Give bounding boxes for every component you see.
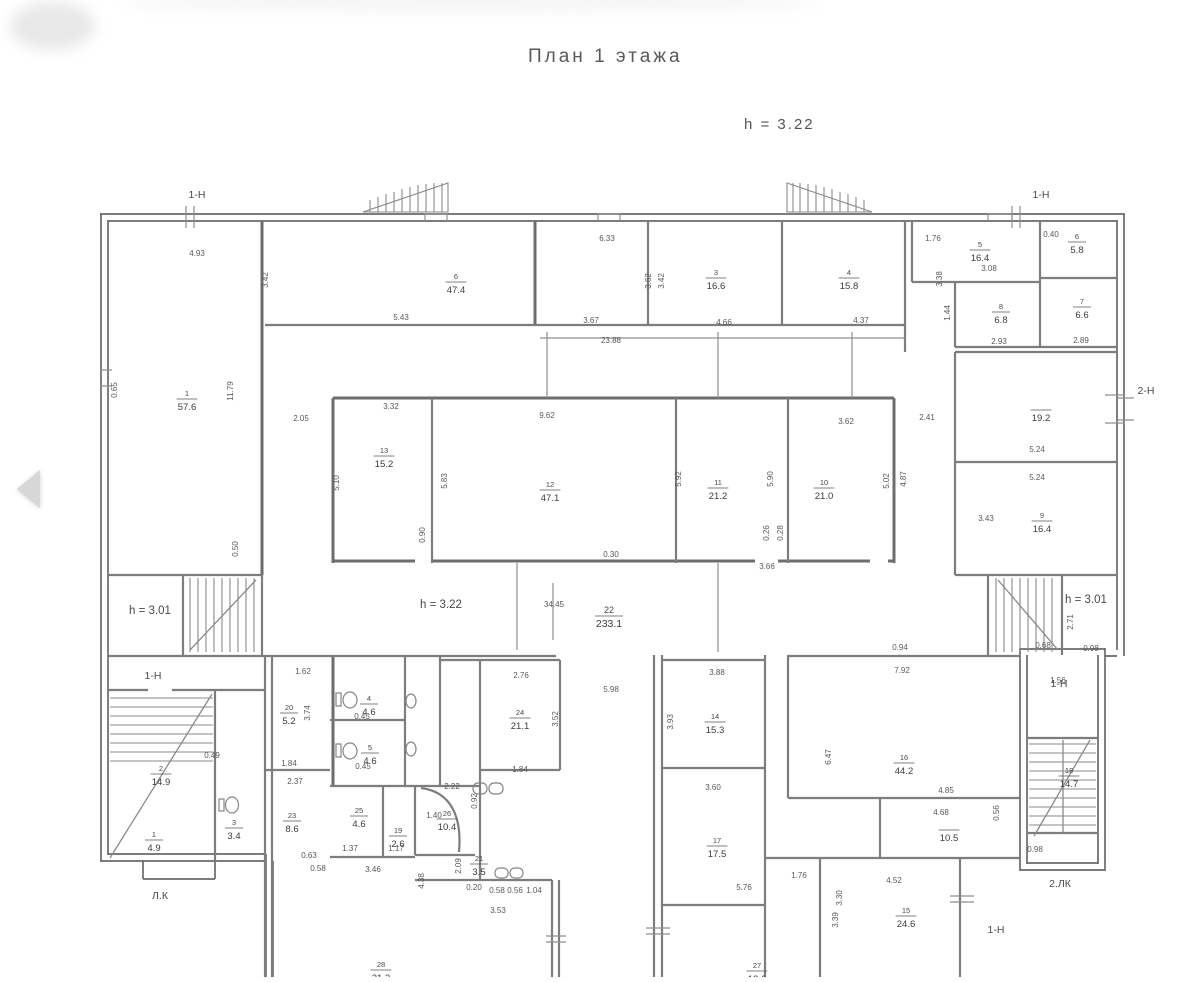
room-number: 16 bbox=[900, 753, 908, 762]
room-area: 4.9 bbox=[147, 843, 160, 854]
dimension-labels: 4.933.426.335.433.6723.884.664.373.623.4… bbox=[110, 230, 1099, 928]
room-number: 1 bbox=[185, 389, 189, 398]
room-number: 17 bbox=[713, 836, 721, 845]
dimension-label: 6.33 bbox=[599, 234, 615, 243]
room-area: 10.4 bbox=[438, 822, 457, 833]
sink-icon bbox=[406, 694, 416, 708]
dimension-label: 0.28 bbox=[776, 525, 785, 541]
room-number: 4 bbox=[847, 268, 851, 277]
dimension-label: 1.40 bbox=[426, 811, 442, 820]
dimension-label: 3.62 bbox=[838, 417, 854, 426]
dimension-label: 0.45 bbox=[354, 712, 370, 721]
dimension-label: 5.10 bbox=[332, 475, 341, 491]
dimension-label: 1.37 bbox=[342, 844, 358, 853]
section-marker: 1-Н bbox=[988, 924, 1005, 936]
section-marker: 1-Н bbox=[1051, 678, 1068, 690]
toilet-icon bbox=[343, 692, 357, 708]
section-marker: 1-Н bbox=[145, 670, 162, 682]
room-number: 13 bbox=[380, 446, 388, 455]
room-area: 21.2 bbox=[709, 491, 728, 502]
room-number: 11 bbox=[714, 478, 722, 487]
dimension-label: 3.08 bbox=[981, 264, 997, 273]
dimension-label: 2.93 bbox=[991, 337, 1007, 346]
dimension-label: 0.40 bbox=[1043, 230, 1059, 239]
dimension-label: 1.76 bbox=[925, 234, 941, 243]
room-number: 22 bbox=[604, 605, 614, 615]
dimension-label: 5.83 bbox=[440, 473, 449, 489]
room-area: 3.5 bbox=[472, 867, 485, 878]
room-number: 20 bbox=[285, 703, 293, 712]
room-number: 9 bbox=[1040, 511, 1044, 520]
room-number: 3 bbox=[232, 818, 236, 827]
room-number: 5 bbox=[978, 240, 982, 249]
dimension-label: 0.58 bbox=[310, 864, 326, 873]
room-area: 47.1 bbox=[541, 493, 560, 504]
dimension-label: 23.88 bbox=[601, 336, 622, 345]
dimension-label: 3.53 bbox=[490, 906, 506, 915]
dimension-label: 4.93 bbox=[189, 249, 205, 258]
room-number: 5 bbox=[368, 743, 372, 752]
floor-height-note: h = 3.22 bbox=[744, 116, 815, 133]
dimension-label: 3.74 bbox=[303, 705, 312, 721]
room-number: 10 bbox=[820, 478, 828, 487]
height-note: h = 3.22 bbox=[420, 599, 462, 611]
dimension-label: 1.84 bbox=[281, 759, 297, 768]
dimension-label: 2.71 bbox=[1066, 614, 1075, 630]
plan-title: План 1 этажа bbox=[528, 46, 683, 68]
section-marker: 2.ЛК bbox=[1049, 878, 1072, 890]
room-number: 3 bbox=[714, 268, 718, 277]
dimension-label: 5.24 bbox=[1029, 473, 1045, 482]
room-area: 21.0 bbox=[815, 491, 834, 502]
room-area: 57.6 bbox=[178, 402, 197, 413]
room-area: 16.4 bbox=[1033, 524, 1052, 535]
dimension-label: 6.47 bbox=[824, 749, 833, 765]
room-area: 15.3 bbox=[706, 725, 725, 736]
dimension-label: 2.22 bbox=[444, 782, 460, 791]
dimension-label: 0.98 bbox=[1083, 644, 1099, 653]
room-area: 14.7 bbox=[1060, 779, 1079, 790]
dimension-label: 0.45 bbox=[355, 762, 371, 771]
room-area: 15.2 bbox=[375, 459, 394, 470]
dimension-label: 3.38 bbox=[935, 271, 944, 287]
dimension-label: 4.38 bbox=[417, 873, 426, 889]
sink-icon bbox=[406, 742, 416, 756]
toilet-icon bbox=[343, 743, 357, 759]
dimension-label: 2.05 bbox=[293, 414, 309, 423]
dimension-label: 0.49 bbox=[204, 751, 220, 760]
dimension-label: 1.76 bbox=[791, 871, 807, 880]
dimension-label: 0.56 bbox=[507, 886, 523, 895]
dimension-label: 3.32 bbox=[383, 402, 399, 411]
room-number: 18 bbox=[1065, 766, 1073, 775]
room-number: 26 bbox=[443, 809, 451, 818]
dimension-label: 0.92 bbox=[470, 793, 479, 809]
dimension-label: 0.94 bbox=[892, 643, 908, 652]
dimension-label: 3.46 bbox=[365, 865, 381, 874]
room-number: 24 bbox=[516, 708, 524, 717]
dimension-label: 2.89 bbox=[1073, 336, 1089, 345]
room-area: 5.2 bbox=[282, 716, 295, 727]
room-number: 21 bbox=[475, 854, 483, 863]
dimension-label: 0.50 bbox=[231, 541, 240, 557]
dimension-label: 3.42 bbox=[261, 272, 270, 288]
dimension-label: 0.63 bbox=[301, 851, 317, 860]
scanned-plan-sheet: План 1 этажа h = 3.22 bbox=[0, 0, 1200, 977]
section-marker: 2-Н bbox=[1138, 385, 1155, 397]
dimension-label: 5.43 bbox=[393, 313, 409, 322]
room-area: 6.6 bbox=[1075, 310, 1088, 321]
dimension-label: 0.56 bbox=[992, 805, 1001, 821]
floorplan-image-viewer: { "viewer": { "prev_arrow_icon": "left-t… bbox=[0, 0, 1200, 977]
toilet-icon bbox=[336, 693, 341, 706]
dimension-label: 34.45 bbox=[544, 600, 565, 609]
room-area: 16.4 bbox=[971, 253, 990, 264]
toilet-icon bbox=[219, 799, 224, 811]
dimension-label: 4.37 bbox=[853, 316, 869, 325]
room-area: 6.8 bbox=[994, 315, 1007, 326]
dimension-label: 2.76 bbox=[513, 671, 529, 680]
prev-image-arrow[interactable] bbox=[17, 470, 40, 508]
dimension-label: 4.87 bbox=[899, 471, 908, 487]
dimension-label: 3.67 bbox=[583, 316, 599, 325]
room-area: 4.6 bbox=[352, 819, 365, 830]
dimension-label: 0.68 bbox=[1035, 641, 1051, 650]
scan-smudge bbox=[10, 2, 95, 50]
dimension-label: 4.52 bbox=[886, 876, 902, 885]
sink-icon bbox=[495, 868, 508, 878]
dimension-label: 3.39 bbox=[831, 912, 840, 928]
dimension-label: 0.65 bbox=[110, 382, 119, 398]
room-number: 25 bbox=[355, 806, 363, 815]
room-number: 8 bbox=[999, 302, 1003, 311]
dimension-label: 5.24 bbox=[1029, 445, 1045, 454]
dimension-label: 5.92 bbox=[674, 471, 683, 487]
room-area: 47.4 bbox=[447, 285, 466, 296]
dimension-label: 5.98 bbox=[603, 685, 619, 694]
room-number: 12 bbox=[546, 480, 554, 489]
dimension-label: 0.58 bbox=[489, 886, 505, 895]
sink-icon bbox=[510, 868, 523, 878]
dimension-label: 3.43 bbox=[978, 514, 994, 523]
dimension-label: 3.88 bbox=[709, 668, 725, 677]
dimension-label: 11.79 bbox=[226, 381, 235, 401]
room-area: 21.1 bbox=[511, 721, 530, 732]
section-marker: Л.К bbox=[152, 890, 169, 902]
dimension-label: 3.62 bbox=[644, 273, 653, 289]
dimension-label: 0.26 bbox=[762, 525, 771, 541]
dimension-label: 3.30 bbox=[835, 890, 844, 906]
dimension-label: 7.92 bbox=[894, 666, 910, 675]
room-area: 19.2 bbox=[1032, 413, 1051, 424]
partition-walls bbox=[108, 221, 1118, 977]
room-area: 15.8 bbox=[840, 281, 859, 292]
room-area: 24.6 bbox=[897, 919, 916, 930]
room-area: 8.6 bbox=[285, 824, 298, 835]
dimension-label: 3.52 bbox=[551, 711, 560, 727]
room-area: 14.9 bbox=[152, 777, 171, 788]
dimension-label: 3.93 bbox=[666, 714, 675, 730]
room-number: 28 bbox=[377, 960, 385, 969]
dimension-label: 1.17 bbox=[388, 844, 404, 853]
dimension-label: 0.98 bbox=[1027, 845, 1043, 854]
dimension-label: 3.60 bbox=[705, 783, 721, 792]
section-marker: 1-Н bbox=[1033, 189, 1050, 201]
dimension-label: 1.62 bbox=[295, 667, 311, 676]
dimension-label: 2.41 bbox=[919, 413, 935, 422]
dimension-label: 0.30 bbox=[603, 550, 619, 559]
room-number: 19 bbox=[394, 826, 402, 835]
sink-icon bbox=[489, 783, 503, 794]
room-number: 2 bbox=[159, 764, 163, 773]
stair-hatching bbox=[110, 183, 1096, 858]
dimension-label: 2.37 bbox=[287, 777, 303, 786]
room-number: 15 bbox=[902, 906, 910, 915]
dimension-label: 3.66 bbox=[759, 562, 775, 571]
room-area: 17.5 bbox=[708, 849, 727, 860]
height-notes: h = 3.01h = 3.22h = 3.01 bbox=[129, 594, 1107, 617]
toilet-icon bbox=[336, 744, 341, 757]
room-area: 233.1 bbox=[596, 618, 622, 630]
height-note: h = 3.01 bbox=[1065, 594, 1107, 606]
room-number: 27 bbox=[753, 961, 761, 970]
room-number: 23 bbox=[288, 811, 296, 820]
room-area: 5.8 bbox=[1070, 245, 1083, 256]
dimension-label: 0.20 bbox=[466, 883, 482, 892]
dimension-label: 1.44 bbox=[943, 305, 952, 321]
room-area: 10.5 bbox=[940, 833, 959, 844]
dimension-label: 2.09 bbox=[454, 858, 463, 874]
room-number: 1 bbox=[152, 830, 156, 839]
room-number: 7 bbox=[1080, 297, 1084, 306]
dimension-label: 5.90 bbox=[766, 471, 775, 487]
dimension-label: 1.84 bbox=[512, 765, 528, 774]
dimension-label: 4.85 bbox=[938, 786, 954, 795]
dimension-label: 5.76 bbox=[736, 883, 752, 892]
dimension-label: 1.04 bbox=[526, 886, 542, 895]
room-area: 16.6 bbox=[707, 281, 726, 292]
room-number: 6 bbox=[1075, 232, 1079, 241]
floor-plan-svg: 157.6647.4316.6415.8516.465.886.876.619.… bbox=[0, 0, 1200, 977]
dimension-label: 9.62 bbox=[539, 411, 555, 420]
room-area: 3.4 bbox=[227, 831, 240, 842]
toilet-icon bbox=[226, 797, 239, 813]
section-marker: 1-Н bbox=[189, 189, 206, 201]
room-number: 4 bbox=[367, 694, 371, 703]
dimension-label: 3.42 bbox=[657, 273, 666, 289]
height-note: h = 3.01 bbox=[129, 605, 171, 617]
dimension-label: 4.66 bbox=[716, 318, 732, 327]
dimension-label: 4.68 bbox=[933, 808, 949, 817]
room-number: 14 bbox=[711, 712, 719, 721]
room-area: 21.3 bbox=[372, 973, 391, 977]
dimension-label: 0.90 bbox=[418, 527, 427, 543]
room-number: 6 bbox=[454, 272, 458, 281]
dimension-label: 5.02 bbox=[882, 473, 891, 489]
room-area: 44.2 bbox=[895, 766, 914, 777]
